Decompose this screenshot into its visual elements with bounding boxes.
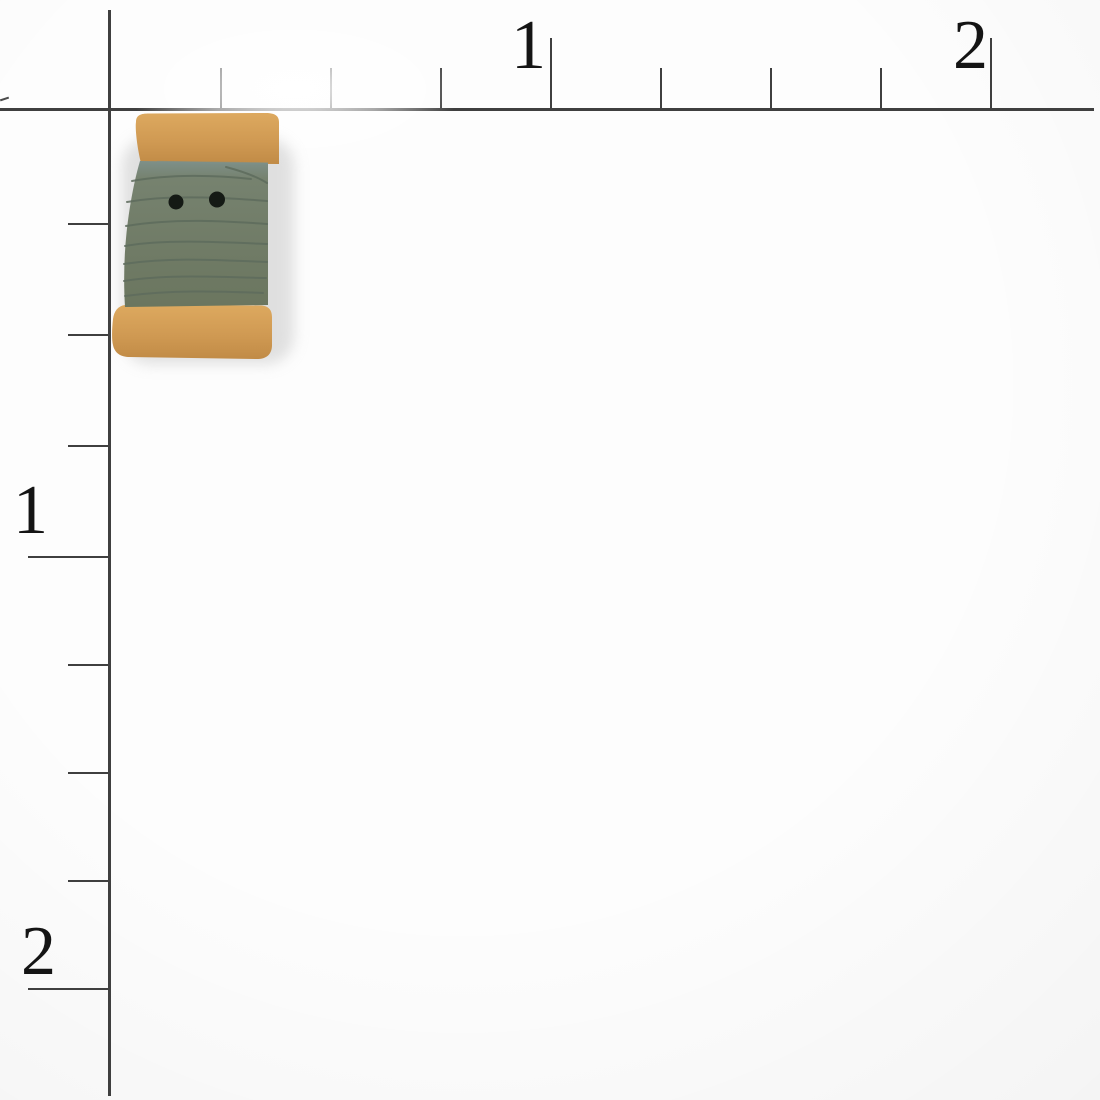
- ruler-tick-left-minor: [68, 664, 110, 666]
- spool-top-flange: [136, 113, 279, 164]
- ruler-label-left-2: 2: [0, 917, 56, 987]
- spool-button: [95, 95, 325, 395]
- ruler-tick-top-minor: [440, 68, 442, 110]
- ruler-tick-left-minor: [68, 445, 110, 447]
- ruler-tick-left-minor: [68, 772, 110, 774]
- button-hole-left: [169, 195, 184, 210]
- ruler-tick-top-minor: [770, 68, 772, 110]
- button-hole-right: [209, 192, 225, 208]
- ruler-tick-top-major: [990, 38, 992, 110]
- ruler-edge-tick: [0, 97, 9, 102]
- spool-bottom-flange: [112, 305, 272, 359]
- ruler-tick-top-minor: [880, 68, 882, 110]
- photo-canvas: 1 2 1 2: [0, 0, 1100, 1100]
- ruler-label-top-1: 1: [466, 11, 546, 81]
- spool-thread-body: [124, 161, 268, 307]
- ruler-tick-top-minor: [330, 68, 332, 110]
- ruler-label-left-1: 1: [0, 476, 48, 546]
- ruler-label-top-2: 2: [908, 11, 988, 81]
- ruler-tick-top-major: [550, 38, 552, 110]
- ruler-tick-left-major: [28, 556, 110, 558]
- thread-top-edge-tint: [157, 162, 268, 164]
- ruler-tick-left-minor: [68, 880, 110, 882]
- ruler-tick-top-minor: [660, 68, 662, 110]
